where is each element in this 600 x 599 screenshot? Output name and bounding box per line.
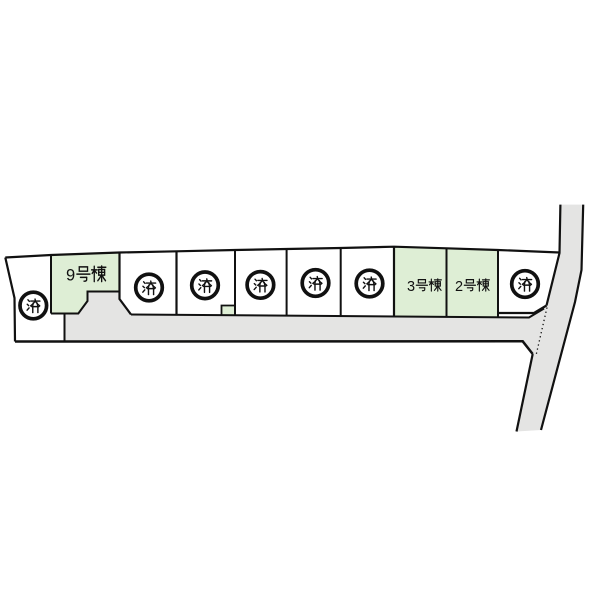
- svg-text:3: 3: [407, 279, 415, 295]
- svg-text:9: 9: [66, 267, 75, 285]
- svg-text:2: 2: [455, 279, 463, 295]
